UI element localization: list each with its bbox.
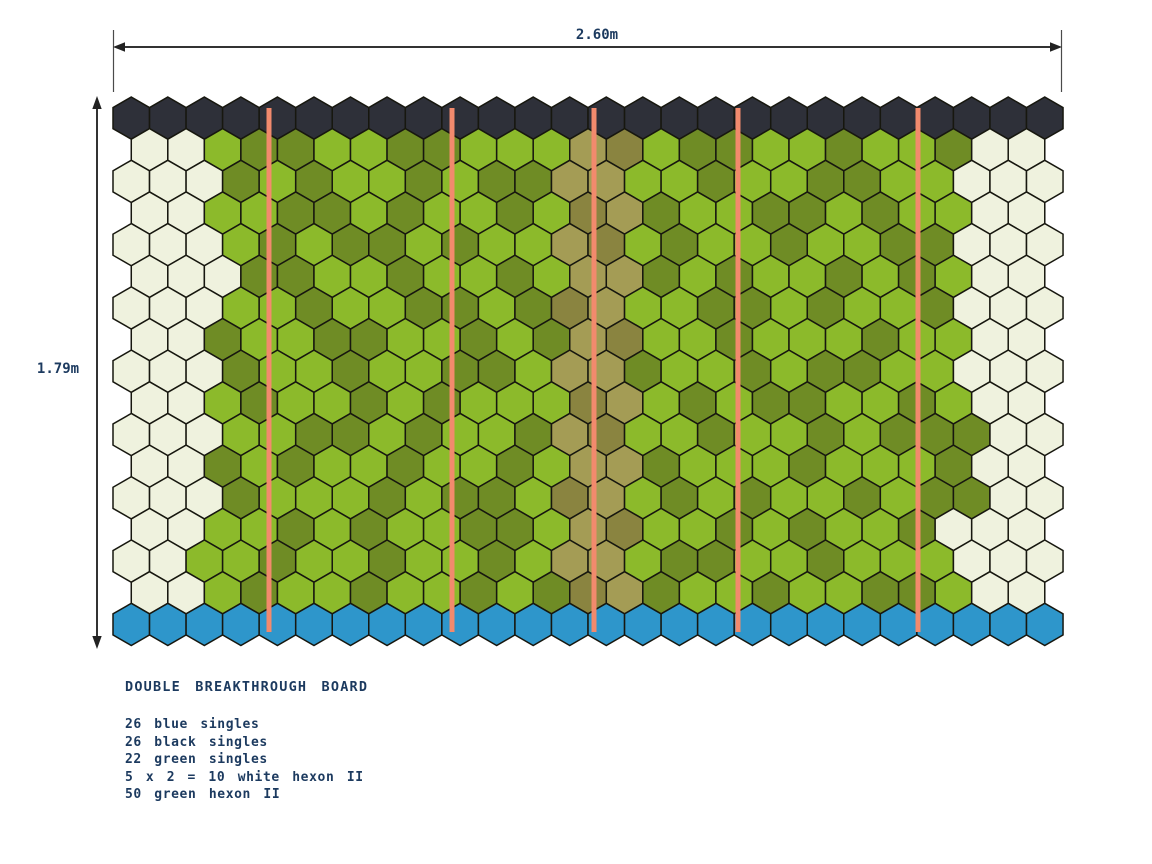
parts-list-item: 26 black singles — [125, 734, 368, 752]
height-dimension-label: 1.79m — [37, 361, 79, 377]
page: 2.60m 1.79m DOUBLE BREAKTHROUGH BOARD 26… — [0, 0, 1152, 864]
board-title: DOUBLE BREAKTHROUGH BOARD — [125, 679, 368, 695]
left-dimension: 1.79m — [37, 96, 102, 649]
parts-list-item: 22 green singles — [125, 751, 368, 769]
parts-list-item: 50 green hexon II — [125, 786, 368, 804]
arrowhead-down-icon — [92, 636, 101, 649]
hex-grid — [113, 97, 1063, 646]
notes-block: DOUBLE BREAKTHROUGH BOARD 26 blue single… — [125, 679, 368, 804]
parts-list-item: 26 blue singles — [125, 716, 368, 734]
top-dimension: 2.60m — [113, 27, 1062, 92]
parts-list-item: 5 x 2 = 10 white hexon II — [125, 769, 368, 787]
arrowhead-left-icon — [113, 42, 125, 51]
width-dimension-label: 2.60m — [576, 27, 618, 43]
parts-list: 26 blue singles 26 black singles 22 gree… — [125, 716, 368, 804]
arrowhead-up-icon — [92, 96, 101, 109]
arrowhead-right-icon — [1050, 42, 1062, 51]
